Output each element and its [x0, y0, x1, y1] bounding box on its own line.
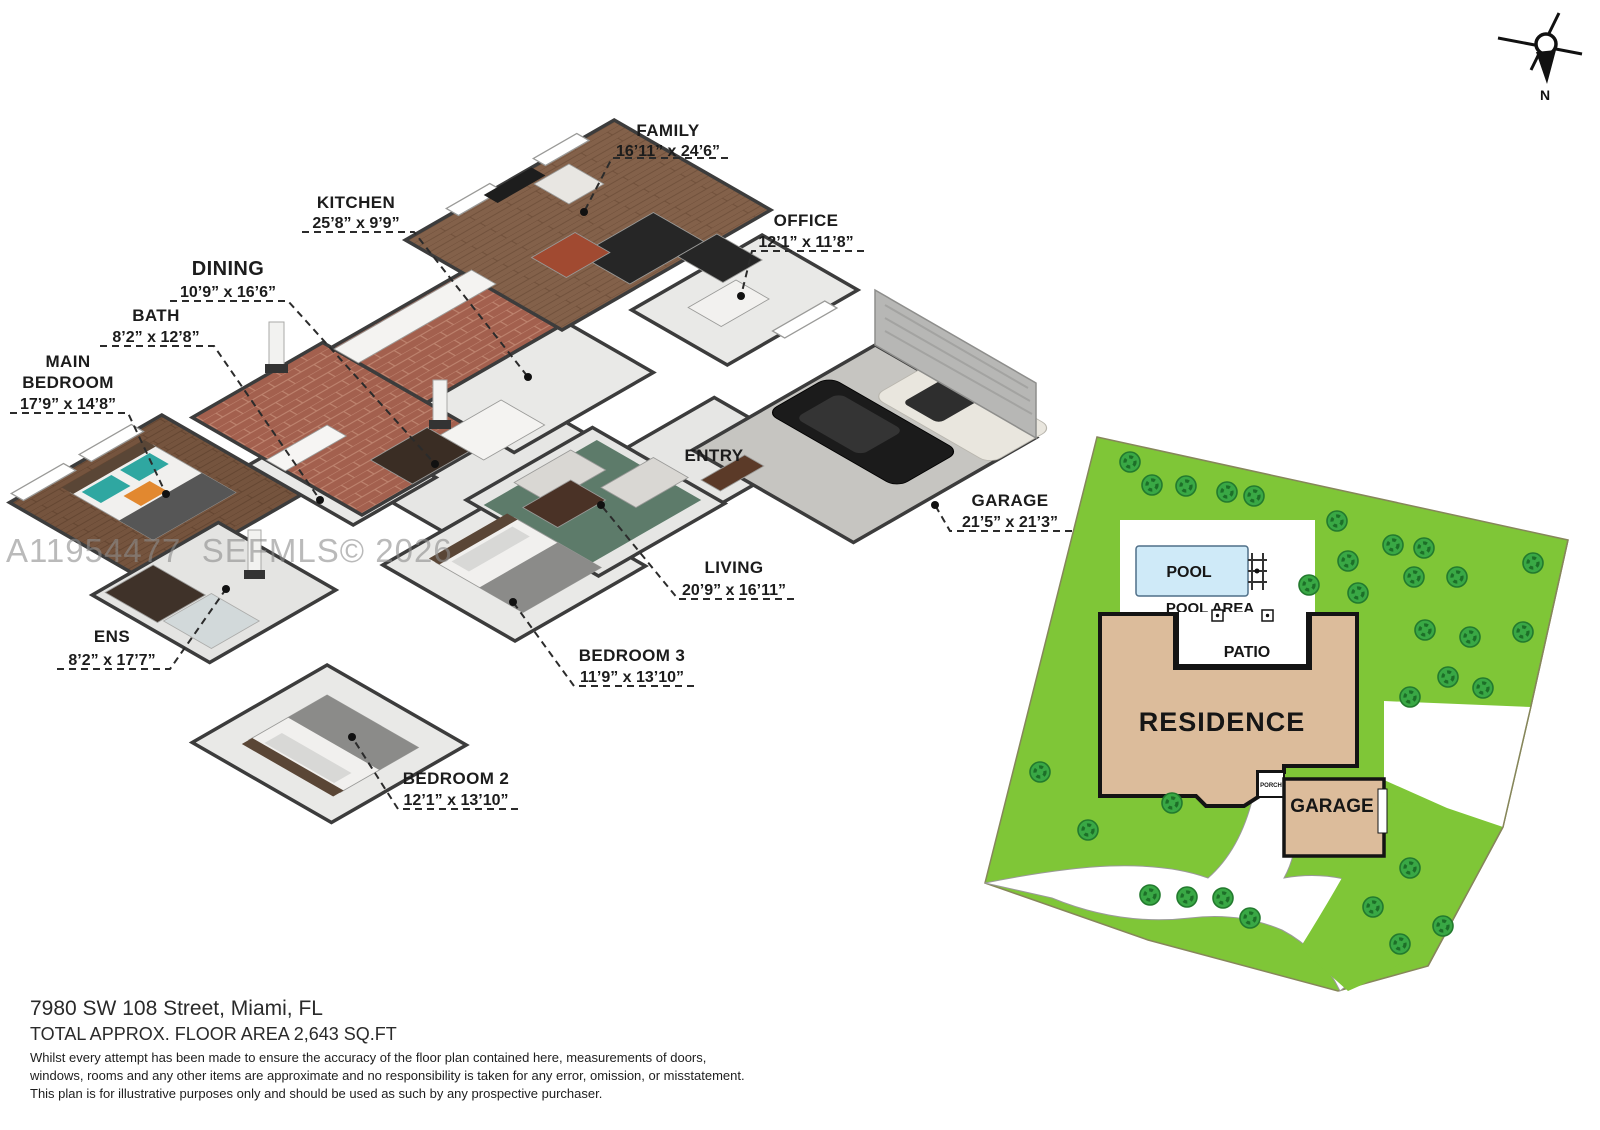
disclaimer-line-2: windows, rooms and any other items are a… [30, 1067, 745, 1085]
room-label-dining: DINING [192, 258, 264, 280]
site-garage-label: GARAGE [1290, 796, 1373, 817]
site-garage-door [1378, 789, 1387, 833]
room-label-living: LIVING [704, 558, 763, 577]
room-dims-main-bedroom: 17’9” x 14’8” [20, 396, 116, 413]
room-dims-ens: 8’2” x 17’7” [68, 652, 155, 669]
room-label-office: OFFICE [774, 211, 839, 230]
porch-label: PORCH [1260, 783, 1282, 789]
room-dims-dining: 10’9” x 16’6” [180, 284, 276, 301]
room-dims-bedroom-2: 12’1” x 13’10” [404, 792, 509, 809]
room-dims-garage: 21’5” x 21’3” [962, 514, 1058, 531]
site-garage [1284, 779, 1384, 856]
site-plan: POOL POOL AREA PATIO RESIDENCE PORCH GAR… [985, 437, 1568, 991]
pool-label: POOL [1166, 564, 1212, 581]
room-label-main-bedroom-2: BEDROOM [22, 373, 114, 392]
floor-plan-3d [0, 116, 1101, 833]
room-dims-office: 12’1” x 11’8” [758, 234, 853, 251]
room-label-main-bedroom-1: MAIN [45, 352, 90, 371]
room-label-bedroom-3: BEDROOM 3 [579, 646, 686, 665]
room-label-garage: GARAGE [971, 491, 1048, 510]
pool-ladder-dot [1255, 569, 1260, 574]
compass-icon: N [1498, 13, 1582, 103]
room-label-kitchen: KITCHEN [317, 193, 395, 212]
compass-north-label: N [1540, 87, 1550, 103]
disclaimer-line-3: This plan is for illustrative purposes o… [30, 1085, 745, 1103]
disclaimer-line-1: Whilst every attempt has been made to en… [30, 1049, 745, 1067]
room-dims-bedroom-3: 11’9” x 13’10” [580, 669, 684, 686]
mls-watermark: A11954477 SEFMLS© 2026 [6, 532, 453, 570]
residence-label: RESIDENCE [1139, 707, 1306, 737]
total-floor-area: TOTAL APPROX. FLOOR AREA 2,643 SQ.FT [30, 1024, 745, 1045]
room-label-ens: ENS [94, 627, 130, 646]
disclaimer: Whilst every attempt has been made to en… [30, 1049, 745, 1103]
room-dims-living: 20’9” x 16’11” [682, 582, 786, 599]
room-dims-kitchen: 25’8” x 9’9” [312, 215, 399, 232]
patio-label: PATIO [1224, 644, 1271, 661]
floorplan-page: FAMILY 16’11” x 24’6” KITCHEN 25’8” x 9’… [0, 0, 1600, 1130]
room-dims-family: 16’11” x 24’6” [616, 143, 720, 160]
property-address: 7980 SW 108 Street, Miami, FL [30, 997, 745, 1021]
room-label-family: FAMILY [636, 121, 699, 140]
footer: 7980 SW 108 Street, Miami, FL TOTAL APPR… [30, 997, 745, 1103]
room-label-bath: BATH [132, 306, 180, 325]
room-dims-bath: 8’2” x 12’8” [112, 329, 199, 346]
room-label-bedroom-2: BEDROOM 2 [403, 769, 510, 788]
room-label-entry: ENTRY [685, 446, 744, 465]
